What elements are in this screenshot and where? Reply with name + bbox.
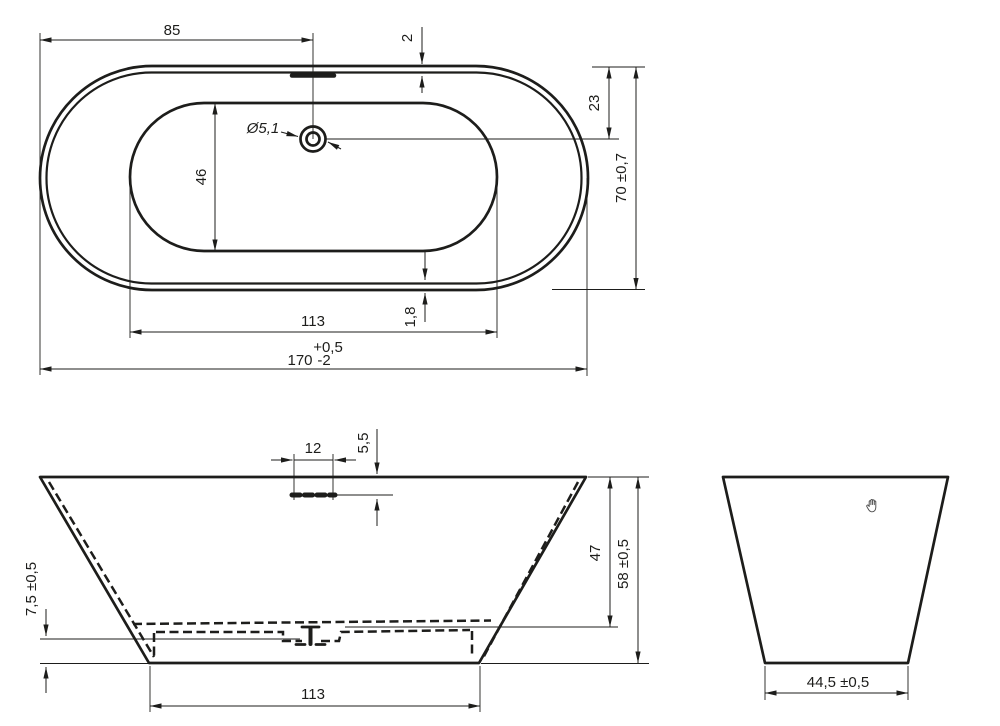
front-view: 12 5,5 7,5 ±0,5 47 58 ±0,5 113	[23, 429, 649, 712]
tub-outer-edge	[40, 66, 588, 290]
dim-floor-recess-height: 7,5 ±0,5	[23, 562, 46, 693]
dim-top-to-drain: 23	[586, 67, 609, 139]
dim-113-top-label: 113	[301, 313, 325, 330]
dim-base-width: 44,5 ±0,5	[765, 674, 908, 693]
side-view: 44,5 ±0,5	[723, 477, 948, 700]
dim-drain-diameter-label: Ø5,1	[246, 120, 280, 137]
dim-left-to-overflow: 85	[40, 22, 313, 40]
front-hidden-lines	[49, 482, 578, 660]
dim-overall-width: 70 ±0,7	[613, 67, 636, 290]
dim-basin-length: 113	[130, 313, 497, 332]
dim-basin-width: 46	[193, 103, 215, 251]
tub-front-outline	[40, 477, 586, 663]
dim-113-front-label: 113	[301, 686, 325, 703]
dim-1-8-label: 1,8	[402, 307, 419, 328]
dim-drain-diameter: Ø5,1	[246, 120, 341, 149]
dim-58-label: 58 ±0,5	[615, 539, 632, 589]
tub-side-outline	[723, 477, 948, 663]
dim-44-5-label: 44,5 ±0,5	[807, 674, 869, 691]
hand-cursor-icon	[867, 499, 876, 511]
dim-inner-depth: 47	[587, 477, 610, 627]
top-view-extension-lines	[40, 33, 645, 376]
dim-70-label: 70 ±0,7	[613, 153, 630, 203]
dim-rim-thickness-top: 2	[399, 27, 422, 93]
dim-base-length: 113	[150, 686, 480, 706]
dim-5-5-label: 5,5	[355, 433, 372, 454]
dim-170-tol-lower-label: -2	[317, 352, 330, 369]
dim-85-label: 85	[164, 22, 181, 39]
dim-47-label: 47	[587, 545, 604, 562]
dim-2-label: 2	[399, 34, 416, 42]
dim-170-label: 170	[287, 352, 312, 369]
dim-12-label: 12	[305, 440, 322, 457]
dim-overall-length: 170 +0,5 -2	[40, 339, 587, 369]
dim-7-5-label: 7,5 ±0,5	[23, 562, 40, 616]
top-view: 85 2 23 70 ±0,7 46 Ø5,1 1,8	[40, 22, 645, 376]
dim-overflow-width: 12	[271, 440, 356, 460]
dim-46-label: 46	[193, 169, 210, 186]
dim-overall-height: 58 ±0,5	[615, 477, 638, 663]
dim-23-label: 23	[586, 95, 603, 112]
front-view-extension-lines	[40, 454, 649, 712]
bathtub-dimension-drawing: 85 2 23 70 ±0,7 46 Ø5,1 1,8	[0, 0, 1000, 726]
technical-drawing-page: 85 2 23 70 ±0,7 46 Ø5,1 1,8	[0, 0, 1000, 726]
